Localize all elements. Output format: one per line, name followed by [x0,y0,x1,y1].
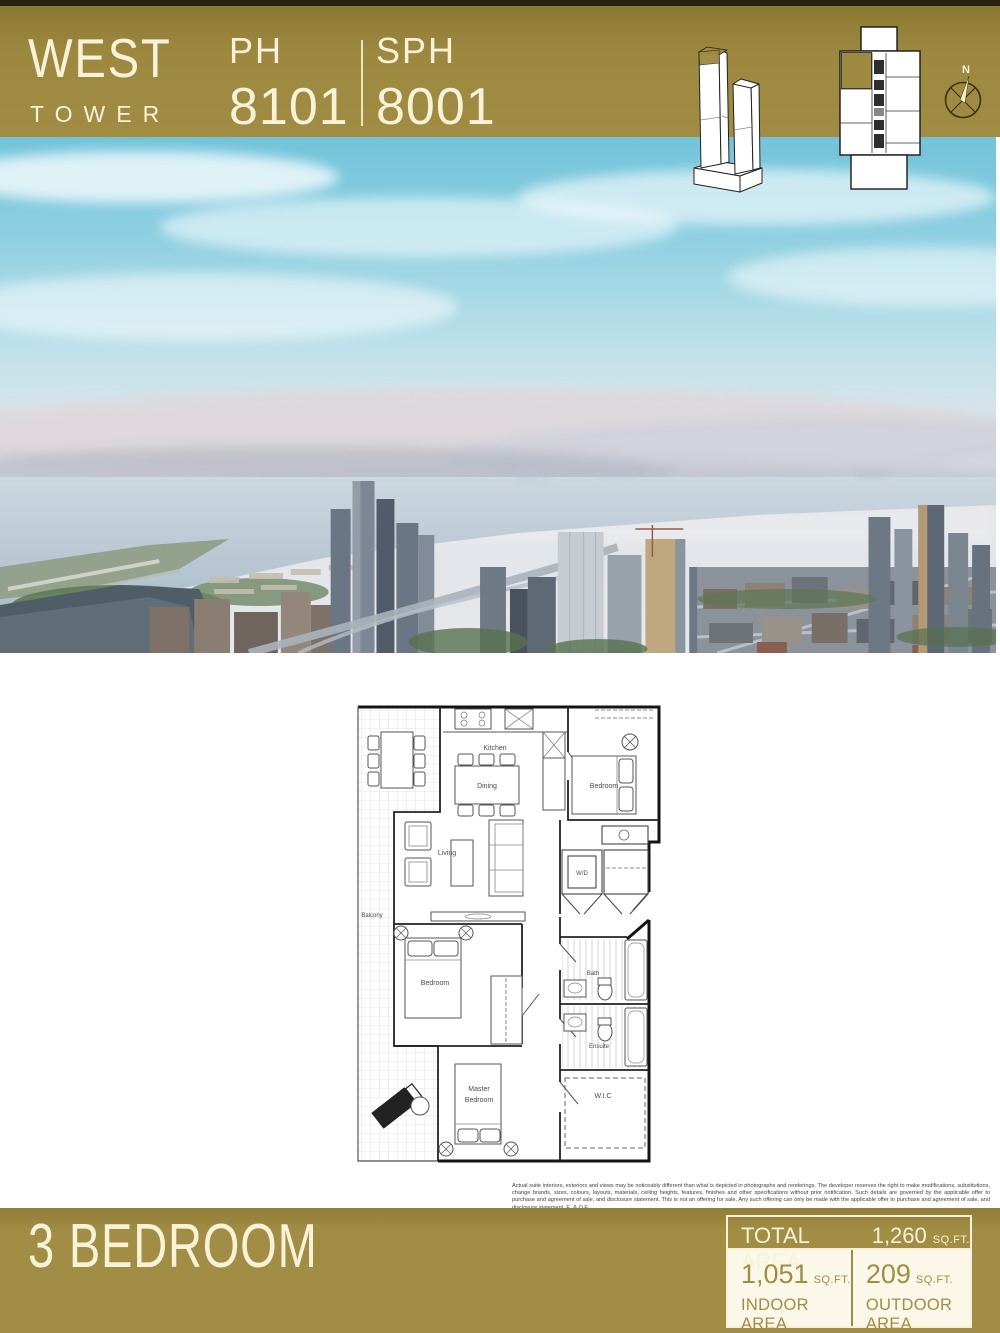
outdoor-area-cell: 209SQ.FT. OUTDOOR AREA [851,1250,970,1326]
compass-icon: N [934,60,994,126]
area-summary-table: TOTAL AREA 1,260 SQ.FT. 1,051SQ.FT. INDO… [726,1215,972,1328]
label-master-line2: Bedroom [465,1097,494,1104]
outdoor-area-unit: SQ.FT. [916,1274,953,1286]
label-bedroom-top: Bedroom [590,783,619,790]
indoor-area-label: INDOOR AREA [741,1296,851,1333]
label-dining: Dining [477,783,497,790]
outdoor-area-label: OUTDOOR AREA [866,1296,970,1333]
label-bath: Bath [587,971,599,977]
aerial-photo [0,137,996,653]
suite-ph-number: 8101 [229,81,349,133]
label-master-line1: Master [468,1086,490,1093]
towers-illustration-icon [688,22,768,194]
tower-name-line1: WEST [28,31,172,86]
label-bedroom-mid: Bedroom [421,980,450,987]
total-area-row: TOTAL AREA 1,260 SQ.FT. [728,1217,970,1250]
label-living: Living [438,850,456,857]
footer-band: 3 BEDROOM TOTAL AREA 1,260 SQ.FT. 1,051S… [0,1208,1000,1333]
keyplan-illustration-icon [834,24,926,194]
suite-sph-prefix: SPH [376,33,456,69]
tower-name-line2: TOWER [30,103,170,126]
label-wd: W/D [576,871,588,877]
compass-north-label: N [962,64,970,76]
label-balcony: Balcony [361,913,382,919]
suite-sph-number: 8001 [376,81,496,133]
floor-plan: Kitchen Dining Living Bedroom Bedroom Ma… [343,692,663,1170]
area-breakdown-row: 1,051SQ.FT. INDOOR AREA 209SQ.FT. OUTDOO… [728,1250,970,1326]
indoor-area-unit: SQ.FT. [814,1274,851,1286]
suite-ph-prefix: PH [229,33,283,69]
plan-type-title: 3 BEDROOM [28,1216,318,1278]
total-area-value: 1,260 [872,1223,927,1249]
label-wic: W.I.C [594,1093,611,1100]
indoor-area-cell: 1,051SQ.FT. INDOOR AREA [728,1250,851,1326]
outdoor-area-value: 209 [866,1259,911,1289]
label-kitchen: Kitchen [483,745,506,752]
total-area-unit: SQ.FT. [933,1234,970,1246]
label-ensuite: Ensuite [589,1044,610,1050]
indoor-area-value: 1,051 [741,1259,809,1289]
brochure-page: WEST TOWER PH 8101 SPH 8001 [0,0,1000,1333]
suite-divider [361,40,363,126]
